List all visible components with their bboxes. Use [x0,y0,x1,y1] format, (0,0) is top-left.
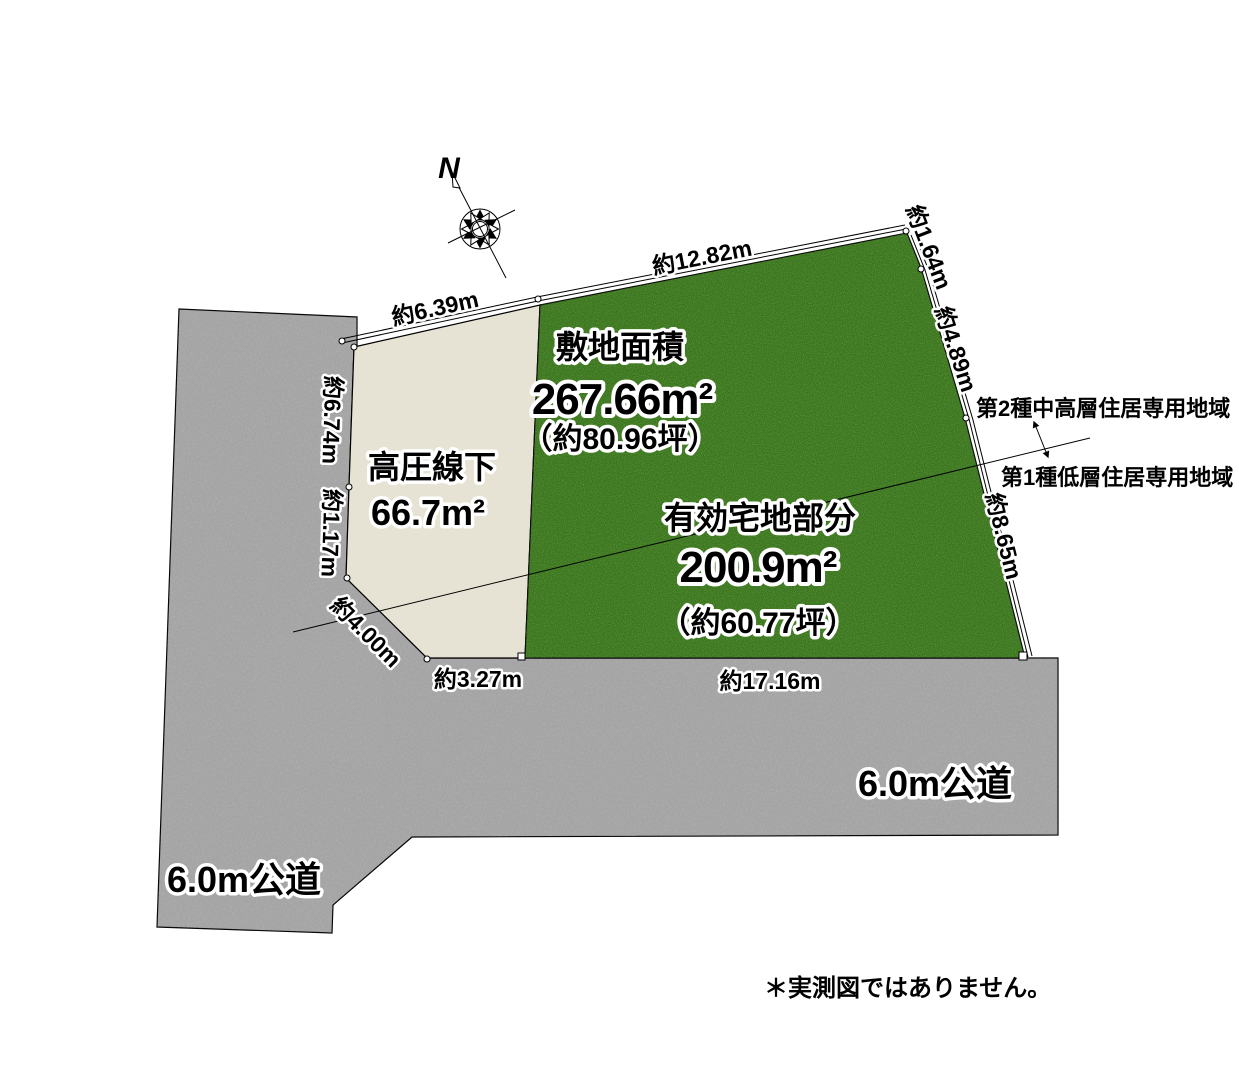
dim-left-lower: 約1.17m [316,488,345,577]
dim-bottom-left: 約3.27m [434,666,522,692]
high-voltage-label: 高圧線下 [368,449,496,485]
zoning-label-lower: 第1種低層住居専用地域 [1001,465,1233,490]
dim-bottom-right: 約17.16m [719,668,820,694]
dim-left-upper: 約6.74m [317,375,346,464]
site-area-value: 267.66m² [532,375,713,424]
zoning-boundary-arrow [1034,422,1048,457]
effective-lot-value: 200.9m² [680,543,837,592]
road-label-bottom: 6.0m公道 [858,763,1012,804]
site-area-tsubo: （約80.96坪） [522,422,717,456]
effective-lot-label: 有効宅地部分 [664,500,856,536]
diagram-canvas: N 敷地面積 267.66m² （約80.96坪） 有効宅地部分 200.9m²… [0,0,1239,1089]
site-area-label: 敷地面積 [556,329,684,365]
north-label: N [438,152,461,185]
effective-lot-tsubo: （約60.77坪） [660,606,855,640]
compass-rose-icon [460,209,500,249]
survey-note: ＊実測図ではありません。 [764,974,1051,1002]
north-compass: N [438,152,515,278]
land-plot-diagram: N 敷地面積 267.66m² （約80.96坪） 有効宅地部分 200.9m²… [0,0,1239,1089]
zoning-label-upper: 第2種中高層住居専用地域 [976,396,1230,421]
high-voltage-value: 66.7m² [371,492,485,533]
road-label-left: 6.0m公道 [167,859,321,900]
